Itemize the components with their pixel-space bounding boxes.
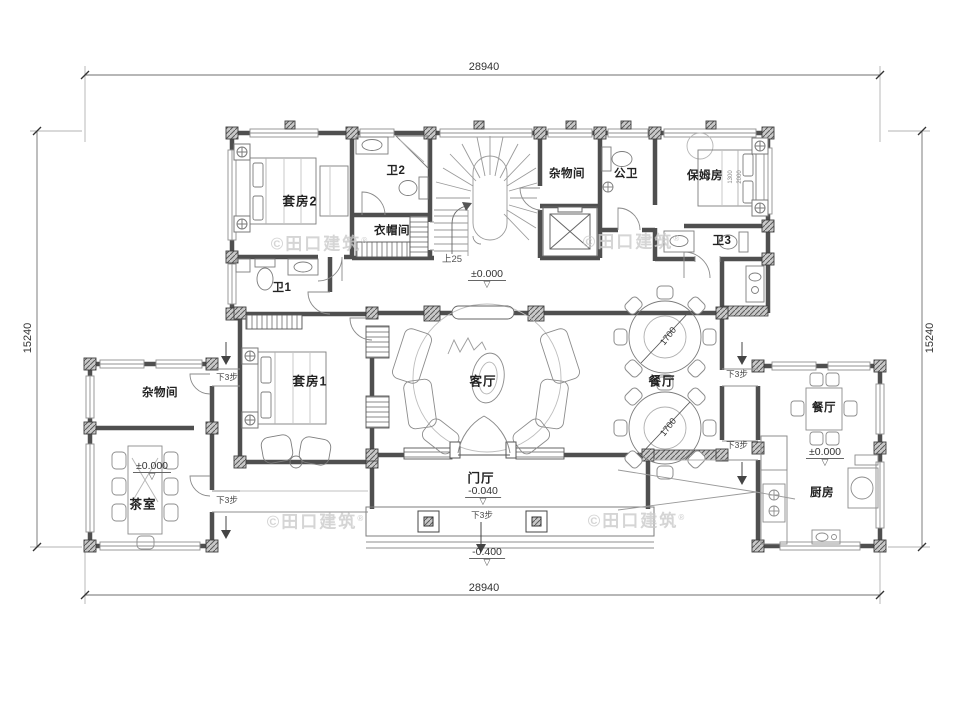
dim-left: 15240 — [22, 323, 34, 354]
watermark: ©田口建筑® — [271, 230, 369, 255]
watermark: ©田口建筑® — [588, 507, 686, 532]
room-label-living: 客厅 — [469, 371, 496, 390]
steps-note: 下3步 — [726, 368, 748, 380]
nightstand — [752, 200, 768, 216]
bed-dim: 2000 — [737, 170, 743, 183]
room-label-dining: 餐厅 — [648, 371, 675, 390]
level-mark-porch: -0.400 ▽ — [469, 546, 505, 566]
nightstand — [242, 412, 258, 428]
dining-south-wall — [650, 450, 722, 460]
nightstand — [234, 216, 250, 232]
room-label-dining-right: 餐厅 — [812, 399, 836, 415]
niche-sink — [746, 266, 764, 302]
level-mark-main: ±0.000 ▽ — [468, 268, 506, 288]
level-mark-foyer: -0.040 ▽ — [465, 485, 501, 505]
room-label-kitchen: 厨房 — [810, 484, 834, 500]
room-label-storage-top: 杂物间 — [549, 165, 585, 181]
floor-plan: 28940 28940 15240 15240 套房2 卫2 衣帽间 杂物间 公… — [0, 0, 961, 722]
niche-wall — [722, 306, 768, 316]
nightstand — [752, 138, 768, 154]
bed-dim: 1300 — [728, 170, 734, 183]
room-label-suite2: 套房2 — [283, 191, 318, 210]
level-triangle-icon: ▽ — [822, 458, 829, 466]
nightstand — [234, 144, 250, 160]
room-label-cloakroom: 衣帽间 — [374, 222, 410, 238]
room-label-bath3: 卫3 — [713, 232, 732, 248]
watermark: ©田口建筑® — [267, 508, 365, 533]
dim-top: 28940 — [469, 61, 500, 73]
dimension-lines — [30, 66, 930, 604]
dim-right: 15240 — [924, 323, 936, 354]
nightstand — [242, 348, 258, 364]
room-label-storage-left: 杂物间 — [142, 384, 178, 400]
room-label-public-bath: 公卫 — [614, 165, 638, 181]
steps-note: 下3步 — [726, 439, 748, 451]
room-label-bath2: 卫2 — [387, 162, 406, 178]
room-label-tea-room: 茶室 — [129, 494, 156, 513]
steps-note: 下3步 — [216, 494, 238, 506]
ramp — [618, 460, 795, 510]
level-triangle-icon: ▽ — [149, 472, 156, 480]
level-triangle-icon: ▽ — [484, 558, 491, 566]
level-triangle-icon: ▽ — [480, 497, 487, 505]
suite1-bed — [258, 352, 332, 468]
level-mark-tea-room: ±0.000 ▽ — [133, 460, 171, 480]
watermark: ©田口建筑® — [583, 228, 681, 253]
stair-up-note: 上25 — [442, 251, 462, 265]
steps-note: 下3步 — [471, 509, 493, 521]
dim-bottom: 28940 — [469, 582, 500, 594]
room-label-foyer: 门厅 — [467, 468, 494, 487]
room-label-suite1: 套房1 — [293, 371, 328, 390]
level-triangle-icon: ▽ — [484, 280, 491, 288]
steps-note: 下3步 — [216, 371, 238, 383]
room-label-bath1: 卫1 — [273, 279, 292, 295]
floor-plan-canvas — [0, 0, 961, 722]
level-mark-right-wing: ±0.000 ▽ — [806, 446, 844, 466]
room-label-nanny: 保姆房 — [687, 167, 723, 183]
